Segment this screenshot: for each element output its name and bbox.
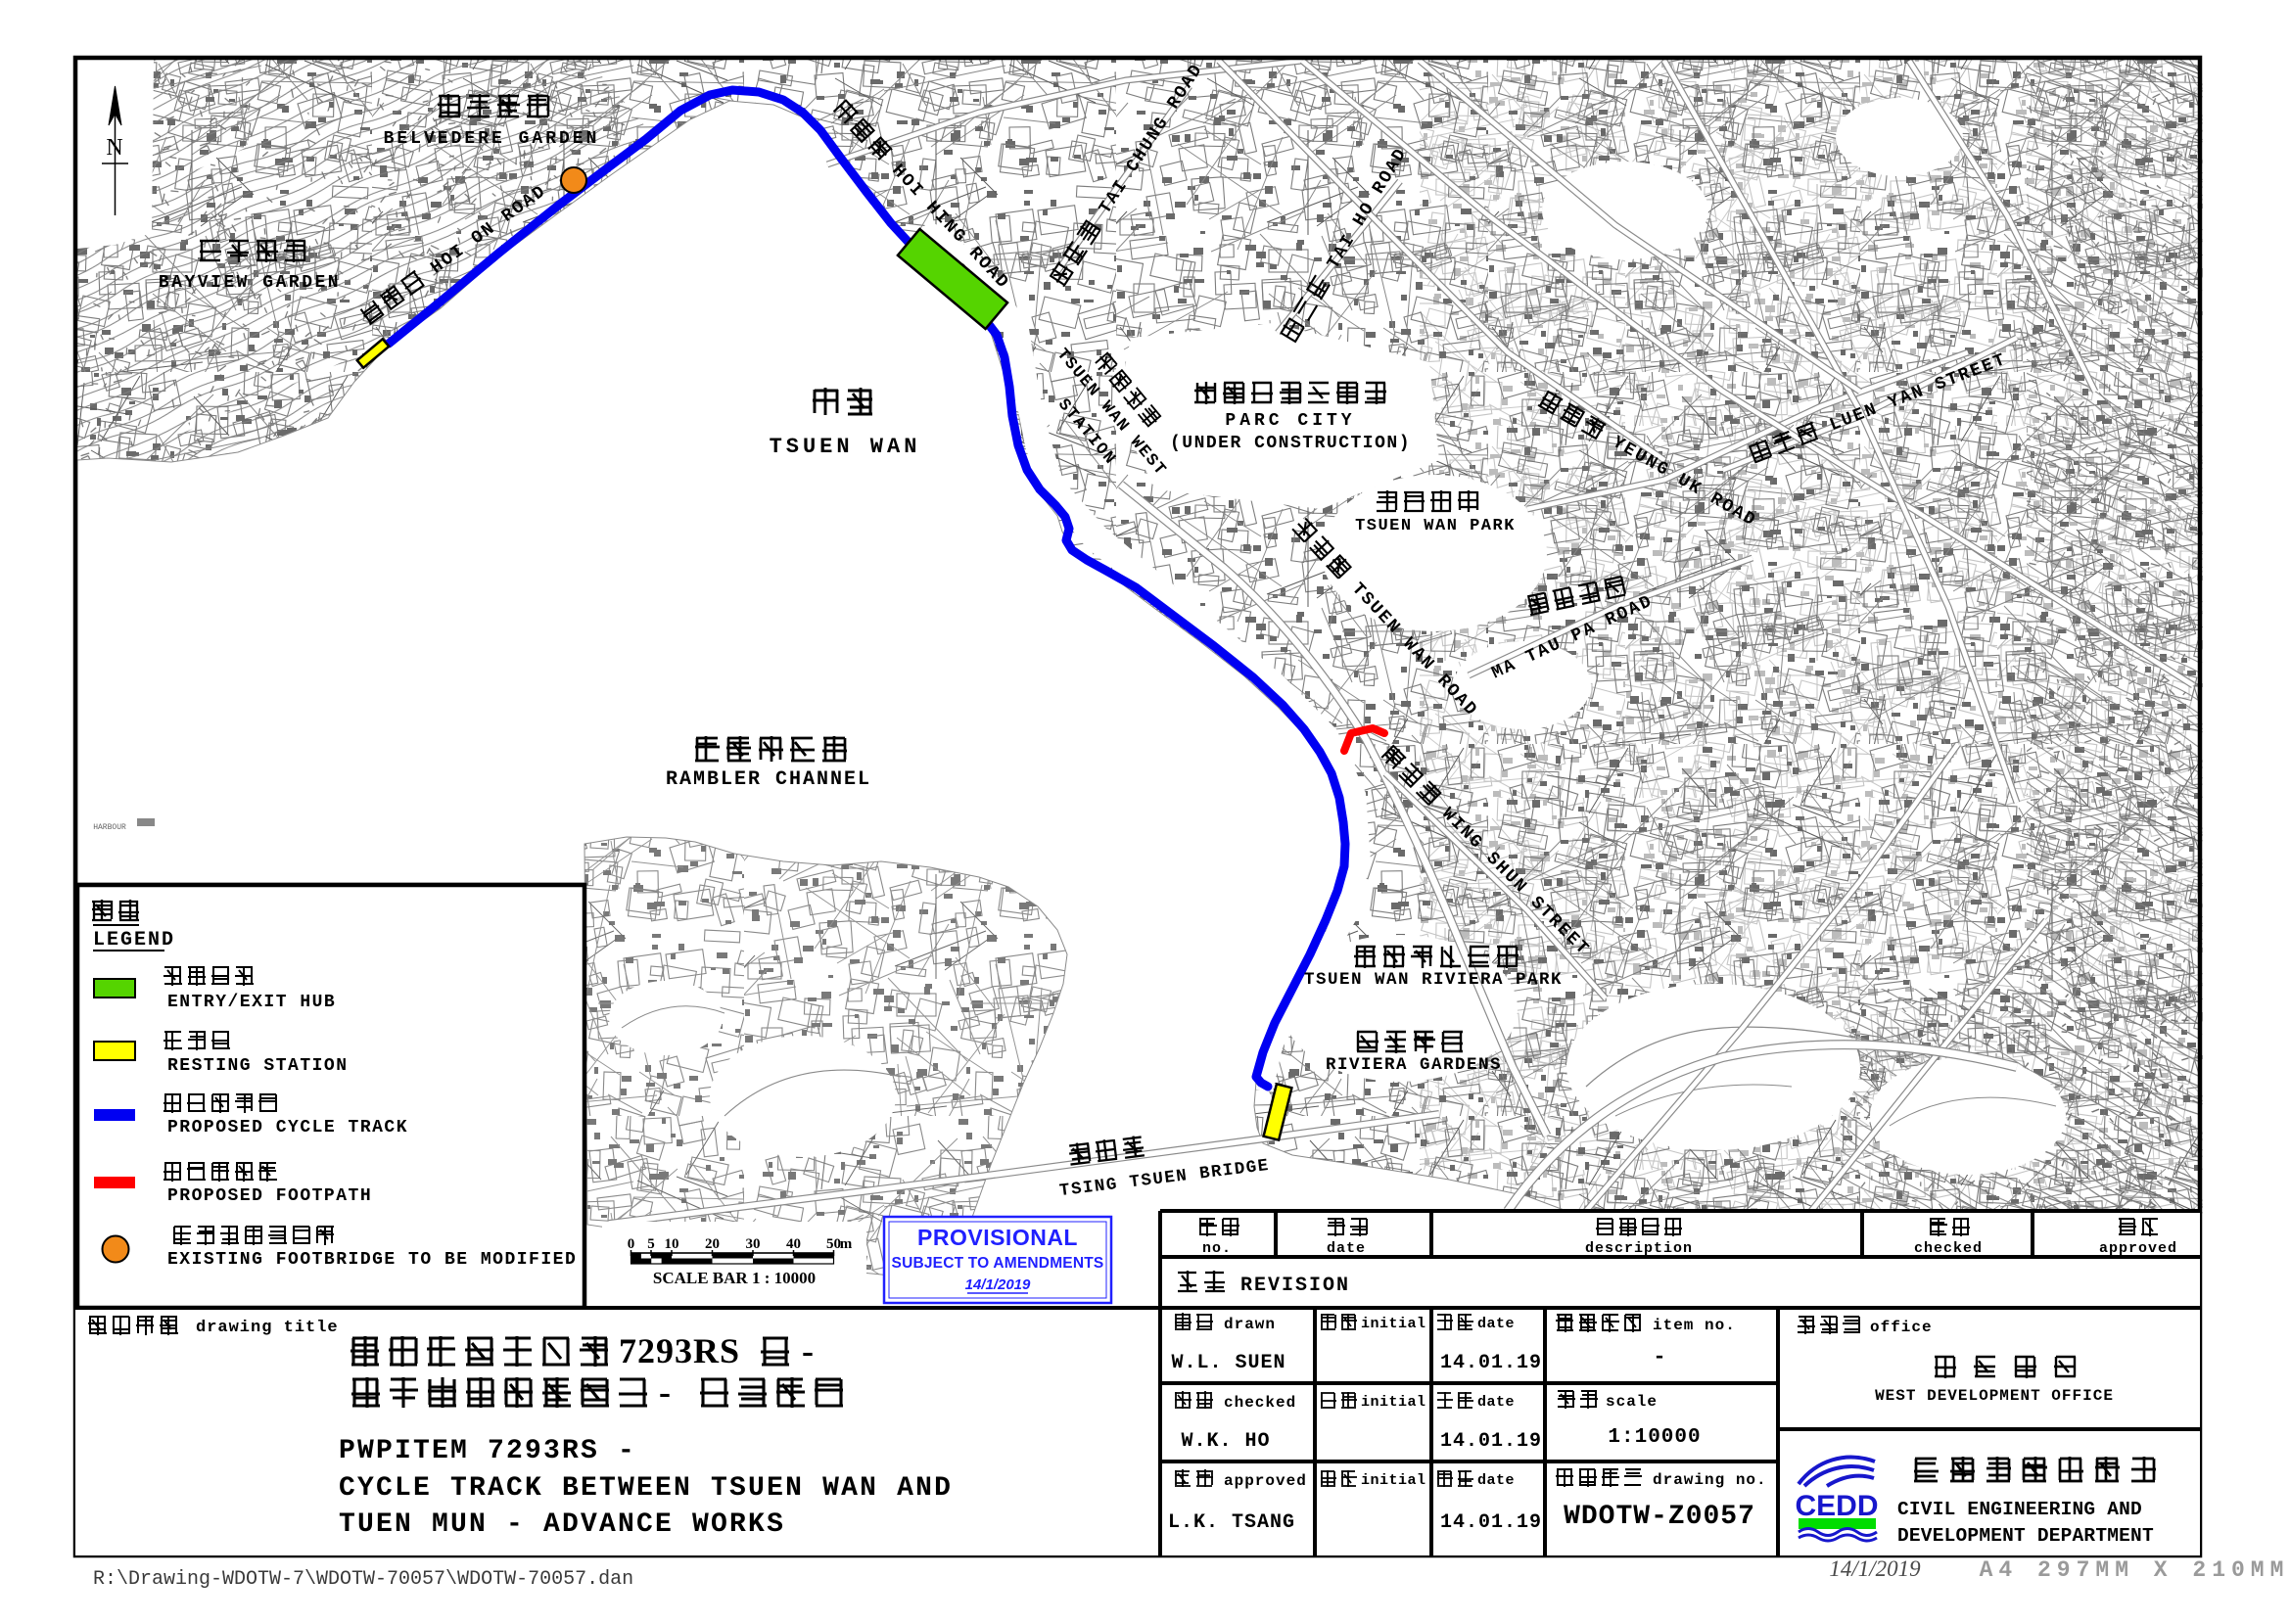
svg-text:WEST DEVELOPMENT OFFICE: WEST DEVELOPMENT OFFICE [1875,1387,2114,1405]
svg-text:m: m [840,1236,853,1252]
svg-text:TSUEN WAN RIVIERA PARK: TSUEN WAN RIVIERA PARK [1304,970,1563,990]
svg-text:TUEN MUN - ADVANCE WORKS: TUEN MUN - ADVANCE WORKS [339,1509,785,1540]
svg-text:date: date [1477,1472,1515,1489]
svg-text:office: office [1870,1319,1933,1336]
svg-text:14.01.19: 14.01.19 [1440,1430,1542,1453]
svg-text:scale: scale [1606,1393,1658,1411]
svg-text:item no.: item no. [1653,1317,1736,1334]
svg-text:PROPOSED FOOTPATH: PROPOSED FOOTPATH [167,1186,372,1206]
svg-text:WDOTW-Z0057: WDOTW-Z0057 [1564,1502,1755,1532]
svg-text:CIVIL ENGINEERING AND: CIVIL ENGINEERING AND [1897,1499,2142,1520]
svg-text:HARBOUR: HARBOUR [93,823,126,832]
svg-text:N: N [106,135,122,161]
svg-text:initial: initial [1361,1316,1426,1332]
svg-text:CEDD: CEDD [1795,1490,1878,1522]
svg-text:PROVISIONAL: PROVISIONAL [917,1225,1078,1250]
svg-text:TSUEN WAN PARK: TSUEN WAN PARK [1355,517,1516,535]
svg-text:14.01.19: 14.01.19 [1440,1352,1542,1374]
svg-text:L.K. TSANG: L.K. TSANG [1168,1511,1295,1534]
svg-text:approved: approved [2099,1240,2177,1257]
svg-text:RIVIERA GARDENS: RIVIERA GARDENS [1326,1055,1502,1075]
svg-text:REVISION: REVISION [1240,1275,1350,1297]
svg-text:approved: approved [1224,1472,1307,1490]
svg-text:no.: no. [1202,1240,1232,1257]
svg-text:BAYVIEW GARDEN: BAYVIEW GARDEN [159,273,341,293]
svg-text:SUBJECT TO AMENDMENTS: SUBJECT TO AMENDMENTS [892,1255,1104,1272]
svg-text:5: 5 [647,1236,655,1252]
svg-text:RESTING STATION: RESTING STATION [167,1056,349,1076]
svg-text:-: - [802,1331,814,1370]
svg-text:checked: checked [1224,1394,1296,1412]
svg-text:date: date [1327,1240,1366,1257]
svg-text:date: date [1477,1394,1515,1411]
svg-text:40: 40 [786,1236,801,1252]
svg-text:ENTRY/EXIT HUB: ENTRY/EXIT HUB [167,993,336,1012]
svg-text:7293RS: 7293RS [619,1331,740,1370]
svg-text:LEGEND: LEGEND [93,929,175,951]
svg-text:description: description [1585,1240,1693,1257]
svg-text:14.01.19: 14.01.19 [1440,1511,1542,1534]
svg-text:30: 30 [746,1236,761,1252]
svg-text:initial: initial [1361,1394,1426,1411]
svg-text:initial: initial [1361,1472,1426,1489]
svg-text:EXISTING FOOTBRIDGE TO BE MODI: EXISTING FOOTBRIDGE TO BE MODIFIED [167,1250,577,1270]
svg-text:-: - [659,1372,671,1412]
svg-text:10: 10 [665,1236,679,1252]
svg-text:20: 20 [705,1236,720,1252]
svg-text:50: 50 [826,1236,841,1252]
svg-text:drawn: drawn [1224,1316,1276,1333]
svg-text:DEVELOPMENT DEPARTMENT: DEVELOPMENT DEPARTMENT [1897,1525,2154,1547]
svg-text:SCALE BAR 1 : 10000: SCALE BAR 1 : 10000 [653,1269,816,1287]
svg-text:TSUEN WAN: TSUEN WAN [770,435,921,459]
svg-text:PROPOSED CYCLE TRACK: PROPOSED CYCLE TRACK [167,1118,408,1137]
svg-text:PARC CITY: PARC CITY [1225,411,1355,431]
svg-text:14/1/2019: 14/1/2019 [965,1276,1031,1293]
svg-text:0: 0 [628,1236,635,1252]
svg-text:(UNDER CONSTRUCTION): (UNDER CONSTRUCTION) [1170,434,1411,453]
svg-text:W.L. SUEN: W.L. SUEN [1171,1352,1285,1374]
svg-text:RAMBLER CHANNEL: RAMBLER CHANNEL [666,768,871,791]
svg-text:checked: checked [1914,1240,1983,1257]
svg-text:W.K. HO: W.K. HO [1181,1430,1270,1453]
svg-text:14/1/2019: 14/1/2019 [1829,1556,1921,1581]
svg-text:1:10000: 1:10000 [1608,1426,1701,1449]
svg-text:R:\Drawing-WDOTW-7\WDOTW-70057: R:\Drawing-WDOTW-7\WDOTW-70057\WDOTW-700… [93,1568,633,1591]
svg-text:A4 297MM X 210MM: A4 297MM X 210MM [1980,1557,2290,1583]
svg-text:CYCLE TRACK BETWEEN TSUEN WAN: CYCLE TRACK BETWEEN TSUEN WAN AND [339,1473,953,1504]
svg-text:date: date [1477,1316,1515,1332]
svg-text:PWPITEM 7293RS -: PWPITEM 7293RS - [339,1436,636,1466]
svg-text:drawing no.: drawing no. [1653,1471,1767,1489]
svg-text:-: - [1653,1345,1665,1369]
svg-text:drawing title: drawing title [196,1319,339,1337]
svg-text:BELVEDERE GARDEN: BELVEDERE GARDEN [384,129,600,149]
